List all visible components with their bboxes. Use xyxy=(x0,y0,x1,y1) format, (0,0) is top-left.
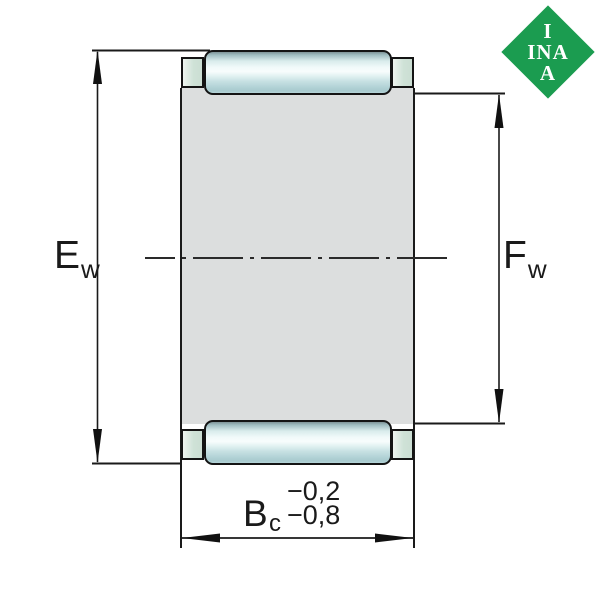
bc-arrow-right-icon xyxy=(375,534,413,543)
fw-label-letter: F xyxy=(503,234,527,277)
fw-dimension-label: Fw xyxy=(503,236,546,275)
ew-label-letter: E xyxy=(54,234,80,277)
fw-arrow-up-icon xyxy=(495,94,504,128)
ew-arrow-up-icon xyxy=(93,50,102,84)
ina-logo: I INA A xyxy=(508,8,588,96)
bc-label-letter: B xyxy=(243,495,268,532)
bc-tolerance-stack: −0,2 −0,8 xyxy=(287,479,340,527)
bc-tolerance-lower: −0,8 xyxy=(287,503,340,527)
bc-label-subscript: c xyxy=(269,512,281,536)
ina-logo-line2: INA xyxy=(527,42,569,63)
ina-logo-line1: I xyxy=(543,21,552,42)
bc-arrow-left-icon xyxy=(182,534,220,543)
ina-logo-line3: A xyxy=(540,63,556,84)
ew-dimension-label: Ew xyxy=(54,236,99,275)
ew-arrow-down-icon xyxy=(93,429,102,463)
fw-arrow-down-icon xyxy=(495,389,504,423)
fw-label-subscript: w xyxy=(528,254,547,284)
ew-label-subscript: w xyxy=(81,254,100,284)
bearing-technical-drawing: Ew Fw B c −0,2 −0,8 I INA A xyxy=(0,0,600,600)
